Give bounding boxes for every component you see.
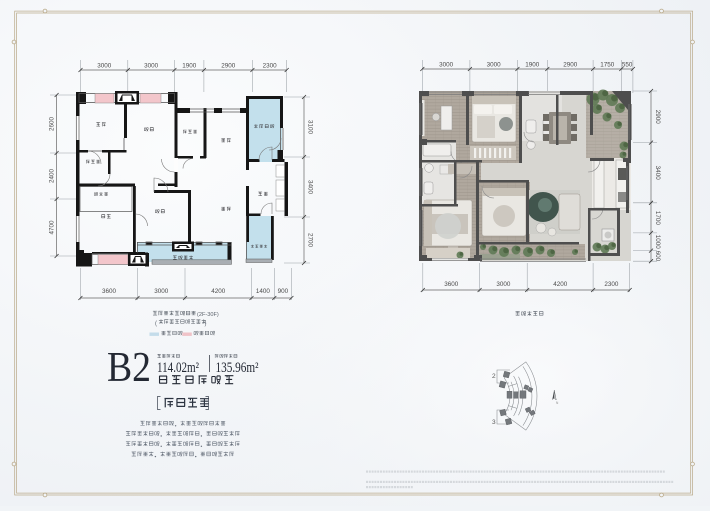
- svg-text:2400: 2400: [49, 169, 56, 184]
- svg-text:2900: 2900: [221, 63, 236, 70]
- svg-text:3600: 3600: [444, 281, 459, 288]
- svg-text:2300: 2300: [263, 63, 278, 70]
- svg-text:4200: 4200: [211, 288, 226, 295]
- svg-text:2300: 2300: [604, 281, 619, 288]
- svg-text:1400: 1400: [256, 288, 271, 295]
- svg-text:3000: 3000: [154, 288, 169, 295]
- svg-text:2600: 2600: [49, 117, 56, 132]
- svg-text:3400: 3400: [307, 180, 314, 195]
- svg-text:900: 900: [278, 288, 289, 295]
- svg-text:135.96m²: 135.96m²: [216, 360, 259, 376]
- svg-text:2900: 2900: [654, 110, 661, 125]
- svg-text:4700: 4700: [49, 220, 56, 235]
- svg-text:(: (: [155, 321, 157, 327]
- svg-text:(2F-30F): (2F-30F): [197, 312, 219, 318]
- svg-text:3: 3: [492, 419, 496, 426]
- svg-text:3100: 3100: [307, 120, 314, 135]
- svg-text:2700: 2700: [307, 233, 314, 248]
- svg-text:600: 600: [654, 251, 661, 262]
- svg-text:3000: 3000: [439, 62, 454, 69]
- svg-text:1700: 1700: [654, 211, 661, 226]
- svg-text:3000: 3000: [144, 63, 159, 70]
- svg-text:1900: 1900: [182, 63, 197, 70]
- svg-text:1000: 1000: [654, 235, 661, 250]
- svg-text:1750: 1750: [600, 62, 615, 69]
- svg-text:4200: 4200: [553, 281, 568, 288]
- svg-text:3400: 3400: [654, 166, 661, 181]
- svg-text:3000: 3000: [97, 63, 112, 70]
- svg-text:3000: 3000: [487, 62, 502, 69]
- svg-text:2900: 2900: [563, 62, 578, 69]
- svg-text:3600: 3600: [102, 288, 117, 295]
- svg-text:): ): [205, 321, 207, 327]
- svg-text:3000: 3000: [496, 281, 511, 288]
- svg-text:2: 2: [492, 373, 496, 380]
- svg-text:550: 550: [622, 62, 633, 69]
- svg-text:114.02m²: 114.02m²: [157, 360, 199, 376]
- svg-text:1900: 1900: [525, 62, 540, 69]
- svg-text:B2: B2: [107, 345, 151, 391]
